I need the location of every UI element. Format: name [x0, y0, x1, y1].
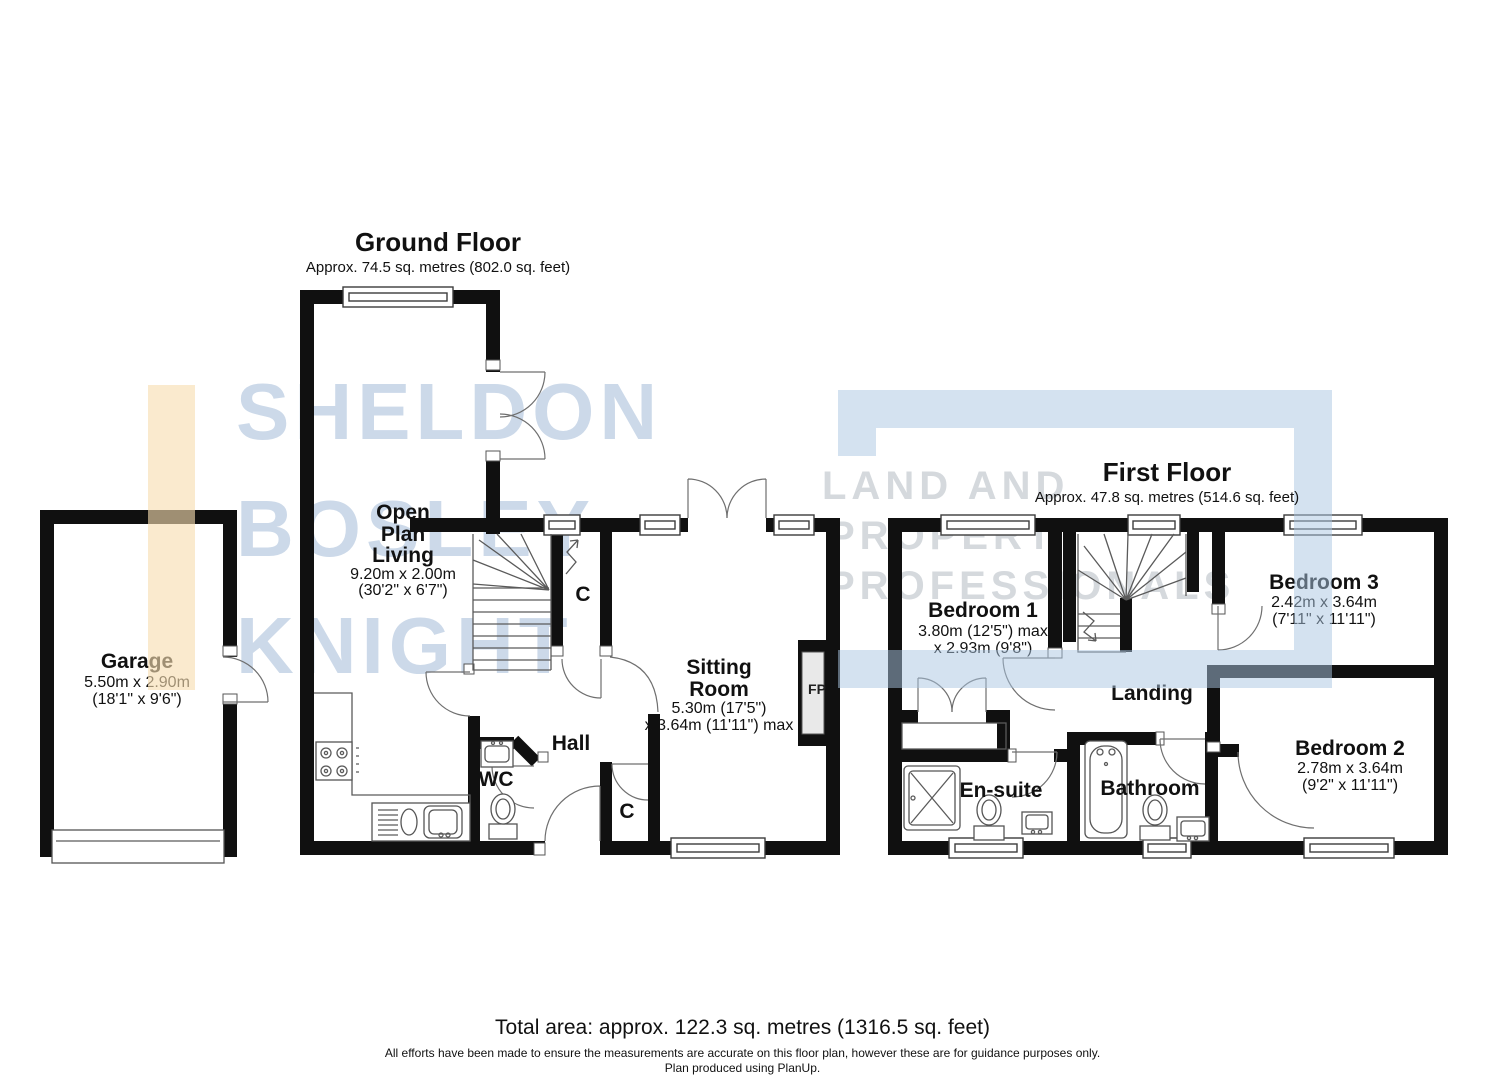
door-symbol: [534, 786, 600, 855]
window-symbol: [640, 515, 680, 535]
window-symbol: [941, 515, 1035, 535]
french-door-symbol: [486, 360, 545, 461]
landing-label: Landing: [1111, 682, 1193, 705]
open-plan-living-label-2: Plan: [381, 523, 425, 546]
disclaimer-text: All efforts have been made to ensure the…: [0, 1046, 1485, 1060]
total-area-text: Total area: approx. 122.3 sq. metres (13…: [0, 1016, 1485, 1040]
sitting-room-dim1: 5.30m (17'5"): [672, 700, 767, 717]
open-plan-living-dim1: 9.20m x 2.00m: [350, 566, 456, 583]
wc-label: WC: [479, 768, 514, 791]
ensuite-fixtures: [904, 766, 1052, 840]
garage-dim1: 5.50m x 2.90m: [84, 674, 190, 691]
plan-credit-text: Plan produced using PlanUp.: [0, 1061, 1485, 1075]
bedroom1-dim2: x 2.93m (9'8"): [934, 640, 1033, 657]
window-symbol: [343, 287, 453, 307]
window-symbol: [544, 515, 580, 535]
window-symbol: [1304, 838, 1394, 858]
door-symbol: [1003, 648, 1062, 710]
sink-icon: [481, 741, 513, 767]
door-symbol: [610, 657, 658, 712]
bathroom-label: Bathroom: [1100, 777, 1199, 800]
bedroom2-dim2: (9'2" x 11'11"): [1302, 777, 1398, 794]
window-symbol: [949, 838, 1023, 858]
floor-plan-drawing: Garage 5.50m x 2.90m (18'1" x 9'6") Open…: [0, 0, 1485, 1080]
fireplace-label: FP: [808, 681, 826, 697]
first-floor-title: First Floor: [967, 458, 1367, 487]
open-plan-living-label-3: Living: [372, 544, 434, 567]
bedroom3-dim1: 2.42m x 3.64m: [1271, 594, 1377, 611]
window-symbol: [671, 838, 765, 858]
ground-floor-title-block: Ground Floor Approx. 74.5 sq. metres (80…: [238, 228, 638, 276]
open-plan-living-label-1: Open: [376, 501, 430, 524]
kitchen-symbols: [314, 693, 470, 841]
kitchen-sink-icon: [372, 803, 470, 841]
bedroom2-dim1: 2.78m x 3.64m: [1297, 760, 1403, 777]
door-symbol: [1212, 604, 1262, 650]
ground-floor-title: Ground Floor: [238, 228, 638, 257]
sink-icon: [1022, 812, 1052, 834]
door-symbol: [426, 664, 474, 716]
door-symbol: [612, 764, 648, 800]
sitting-room-label-1: Sitting: [686, 656, 751, 679]
garage-door-symbol: [52, 830, 224, 863]
bedroom3-label: Bedroom 3: [1269, 571, 1379, 594]
french-door-symbol: [688, 479, 766, 518]
window-symbol: [1128, 515, 1180, 535]
hob-icon: [316, 742, 359, 780]
first-floor-subtitle: Approx. 47.8 sq. metres (514.6 sq. feet): [967, 489, 1367, 506]
closet-bottom-label: C: [619, 800, 634, 823]
ground-floor-subtitle: Approx. 74.5 sq. metres (802.0 sq. feet): [238, 259, 638, 276]
bedroom1-label: Bedroom 1: [928, 599, 1038, 622]
garage-label: Garage: [101, 650, 173, 673]
open-plan-living-dim2: (30'2" x 6'7"): [358, 582, 448, 599]
hall-label: Hall: [552, 732, 591, 755]
bedroom2-label: Bedroom 2: [1295, 737, 1405, 760]
toilet-icon: [1140, 795, 1170, 840]
floorplan-page: SHELDON BOSLEY KNIGHT LAND AND PROPERTY …: [0, 0, 1485, 1080]
sitting-room-label-2: Room: [689, 678, 749, 701]
garage-side-door-symbol: [223, 646, 268, 704]
window-symbol: [774, 515, 814, 535]
window-symbol: [1284, 515, 1362, 535]
toilet-icon: [489, 794, 517, 839]
shower-icon: [904, 766, 960, 830]
door-symbol: [551, 646, 612, 698]
ensuite-label: En-suite: [960, 779, 1043, 802]
bedroom1-dim1: 3.80m (12'5") max: [918, 623, 1048, 640]
stairs-up-arrow: [566, 540, 578, 574]
bedroom3-dim2: (7'11" x 11'11"): [1272, 611, 1376, 628]
garage-dim2: (18'1" x 9'6"): [92, 691, 182, 708]
sitting-room-dim2: x 3.64m (11'11") max: [645, 717, 794, 734]
closet-top-label: C: [575, 583, 590, 606]
first-floor-title-block: First Floor Approx. 47.8 sq. metres (514…: [967, 458, 1367, 506]
sink-icon: [1177, 817, 1209, 841]
